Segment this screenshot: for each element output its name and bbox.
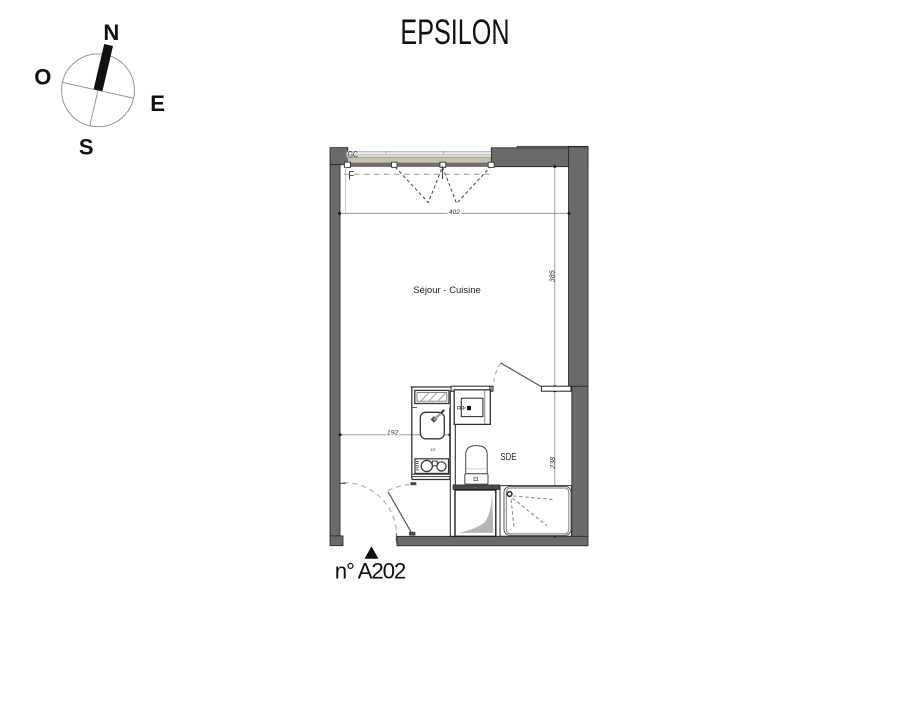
- svg-text:GC: GC: [348, 149, 358, 159]
- svg-text:402: 402: [449, 209, 461, 216]
- svg-text:E: E: [150, 91, 165, 116]
- svg-text:SDE: SDE: [500, 451, 516, 462]
- svg-text:S: S: [79, 135, 94, 160]
- svg-text:EPSILON: EPSILON: [400, 13, 509, 52]
- svg-text:LV: LV: [431, 447, 436, 452]
- svg-text:238: 238: [548, 457, 557, 470]
- svg-text:O: O: [34, 65, 51, 90]
- svg-text:n° A202: n° A202: [335, 559, 406, 584]
- svg-text:Séjour - Cuisine: Séjour - Cuisine: [413, 285, 481, 296]
- svg-text:385: 385: [547, 269, 556, 282]
- svg-text:F: F: [348, 170, 354, 183]
- svg-text:192: 192: [387, 430, 399, 437]
- svg-text:N: N: [103, 20, 119, 45]
